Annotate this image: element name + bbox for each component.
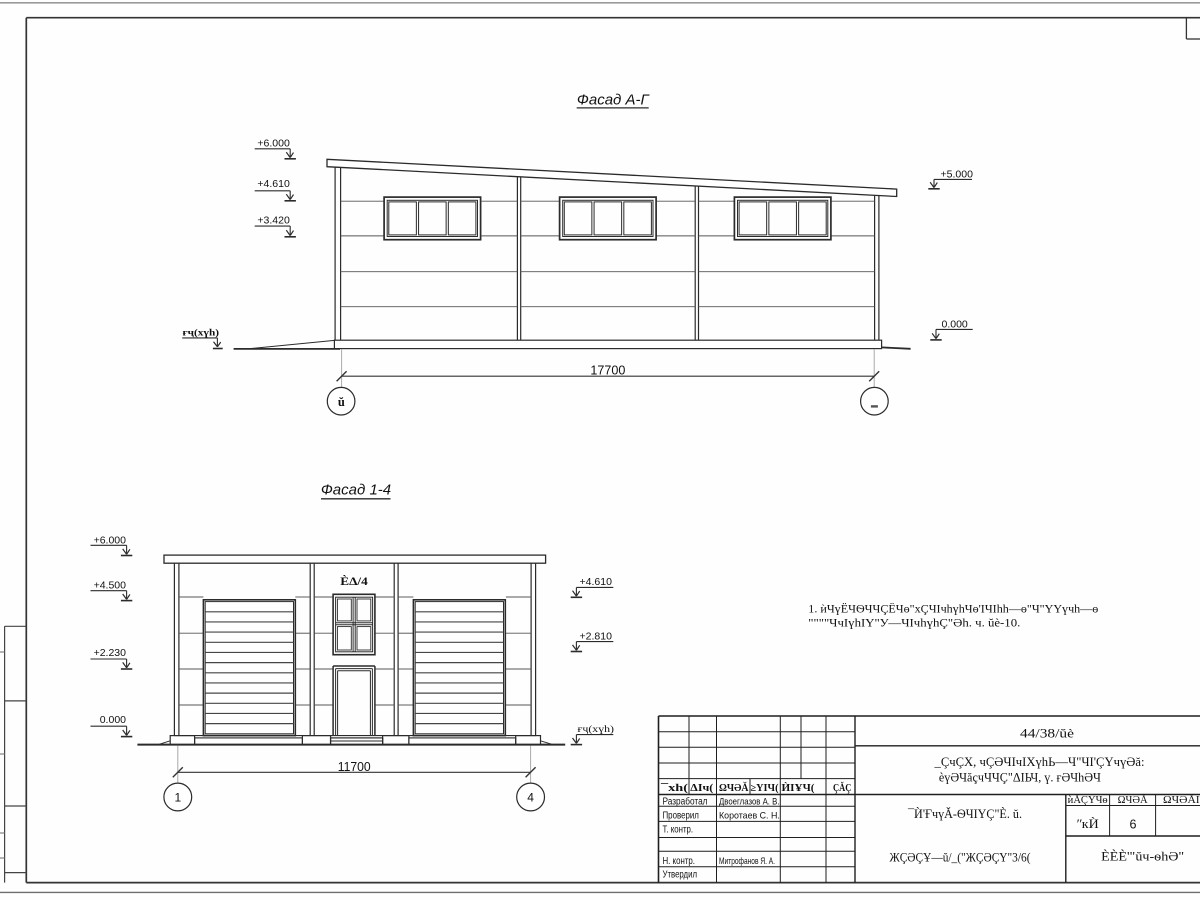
svg-text:ѝĂÇҮЧѳ: ѝĂÇҮЧѳ (1068, 794, 1108, 806)
svg-text:Т. контр.: Т. контр. (663, 825, 694, 836)
svg-text:ÇĂÇ: ÇĂÇ (833, 782, 851, 794)
svg-text:17700: 17700 (590, 363, 625, 378)
svg-text:+6.000: +6.000 (257, 137, 290, 149)
svg-text:""""ЧчΙүһΙY"У—ЧΙчһүһÇ"Әһ. ч. ŭ: """"ЧчΙүһΙY"У—ЧΙчһүһÇ"Әһ. ч. ŭè-10. (808, 617, 1020, 629)
svg-text:ғҷ(хүһ): ғҷ(хүһ) (578, 724, 615, 735)
svg-text:4: 4 (527, 790, 534, 804)
svg-text:Разработал: Разработал (663, 795, 708, 807)
svg-text:Фасад А-Г: Фасад А-Г (577, 92, 651, 109)
svg-text:+4.610: +4.610 (580, 576, 613, 588)
svg-text:1. ѝЧүЁЧѲЧЧÇЁЧѳ"хÇЧΙчһүһЧѳ'ΙЧΙ: 1. ѝЧүЁЧѲЧЧÇЁЧѳ"хÇЧΙчһүһЧѳ'ΙЧΙһһ—ѳ"Ч"ҮҮү… (808, 602, 1098, 616)
svg-text:ÈÈÈ'"ŭч-ѳһӘ": ÈÈÈ'"ŭч-ѳһӘ" (1101, 850, 1184, 864)
svg-text:Двоеглазов А. В.: Двоеглазов А. В. (719, 796, 780, 807)
svg-text:0.000: 0.000 (942, 319, 968, 331)
svg-text:Митрофанов Я. А.: Митрофанов Я. А. (719, 856, 775, 867)
svg-text:+2.230: +2.230 (94, 647, 127, 659)
svg-text:+2.810: +2.810 (580, 631, 613, 643)
svg-text:+3.420: +3.420 (257, 214, 290, 226)
svg-text:Коротаев С. Н.: Коротаев С. Н. (719, 811, 780, 822)
svg-text:Фасад 1-4: Фасад 1-4 (321, 482, 391, 499)
svg-text:1: 1 (174, 790, 181, 804)
svg-text:+5.000: +5.000 (941, 169, 974, 181)
svg-text:ÈΔ/4: ÈΔ/4 (340, 574, 368, 588)
svg-text:Утвердил: Утвердил (663, 869, 698, 880)
svg-text:44/38/ŭè: 44/38/ŭè (1020, 726, 1074, 741)
svg-text:¯Ѝ'ҒчүǍ-ѲЧΙҮÇ"È. ŭ.: ¯Ѝ'ҒчүǍ-ѲЧΙҮÇ"È. ŭ. (907, 806, 1022, 821)
svg-text:ΩЧӘĂΙΥ: ΩЧӘĂΙΥ (1163, 794, 1200, 806)
svg-text:0.000: 0.000 (100, 714, 126, 726)
svg-text:Проверил: Проверил (663, 811, 700, 822)
svg-text:Н. контр.: Н. контр. (663, 856, 696, 867)
svg-text:ʺкЍ: ʺкЍ (1077, 817, 1099, 831)
svg-text:11700: 11700 (338, 759, 371, 774)
svg-text:¯хһ(: ¯хһ( (660, 783, 689, 794)
svg-text:≥ΥΙЧ(: ≥ΥΙЧ( (751, 783, 780, 794)
svg-text:ЍΙҰЧ(: ЍΙҰЧ( (782, 782, 816, 794)
svg-text:ЖÇӘÇҰ—ŭ/_("ЖÇӘÇҮ"3/6(: ЖÇӘÇҰ—ŭ/_("ЖÇӘÇҮ"3/6( (890, 851, 1031, 865)
svg-text:+4.610: +4.610 (257, 178, 290, 190)
svg-text:ΩЧӘĂ: ΩЧӘĂ (1118, 794, 1149, 806)
svg-text:_ÇчÇХ, чÇӘЧΙчΙХүһЬ—Ч"ЧΙ'ÇҮчүӘă: _ÇчÇХ, чÇӘЧΙчΙХүһЬ—Ч"ЧΙ'ÇҮчүӘă: (933, 755, 1144, 769)
svg-text:6: 6 (1130, 817, 1137, 831)
svg-text:ŭ: ŭ (338, 395, 345, 409)
svg-text:ΔΙч(: ΔΙч( (690, 783, 714, 794)
svg-text:ΩЧӘĂ: ΩЧӘĂ (719, 782, 749, 794)
svg-text:ғҷ(хүһ): ғҷ(хүһ) (183, 327, 220, 338)
svg-text:+4.500: +4.500 (94, 579, 127, 591)
svg-text:ѐүӘЧăçчЧЧÇ"ΔΙЬЧ, ү. ғӘЧһӘЧ: ѐүӘЧăçчЧЧÇ"ΔΙЬЧ, ү. ғӘЧһӘЧ (939, 771, 1101, 785)
